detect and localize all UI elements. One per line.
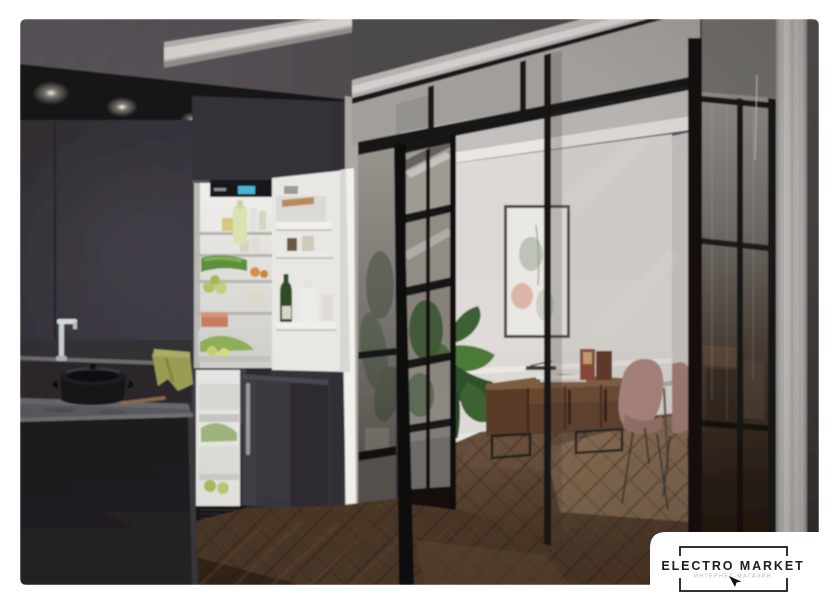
svg-text:ELECTRO MARKET: ELECTRO MARKET <box>661 559 804 573</box>
